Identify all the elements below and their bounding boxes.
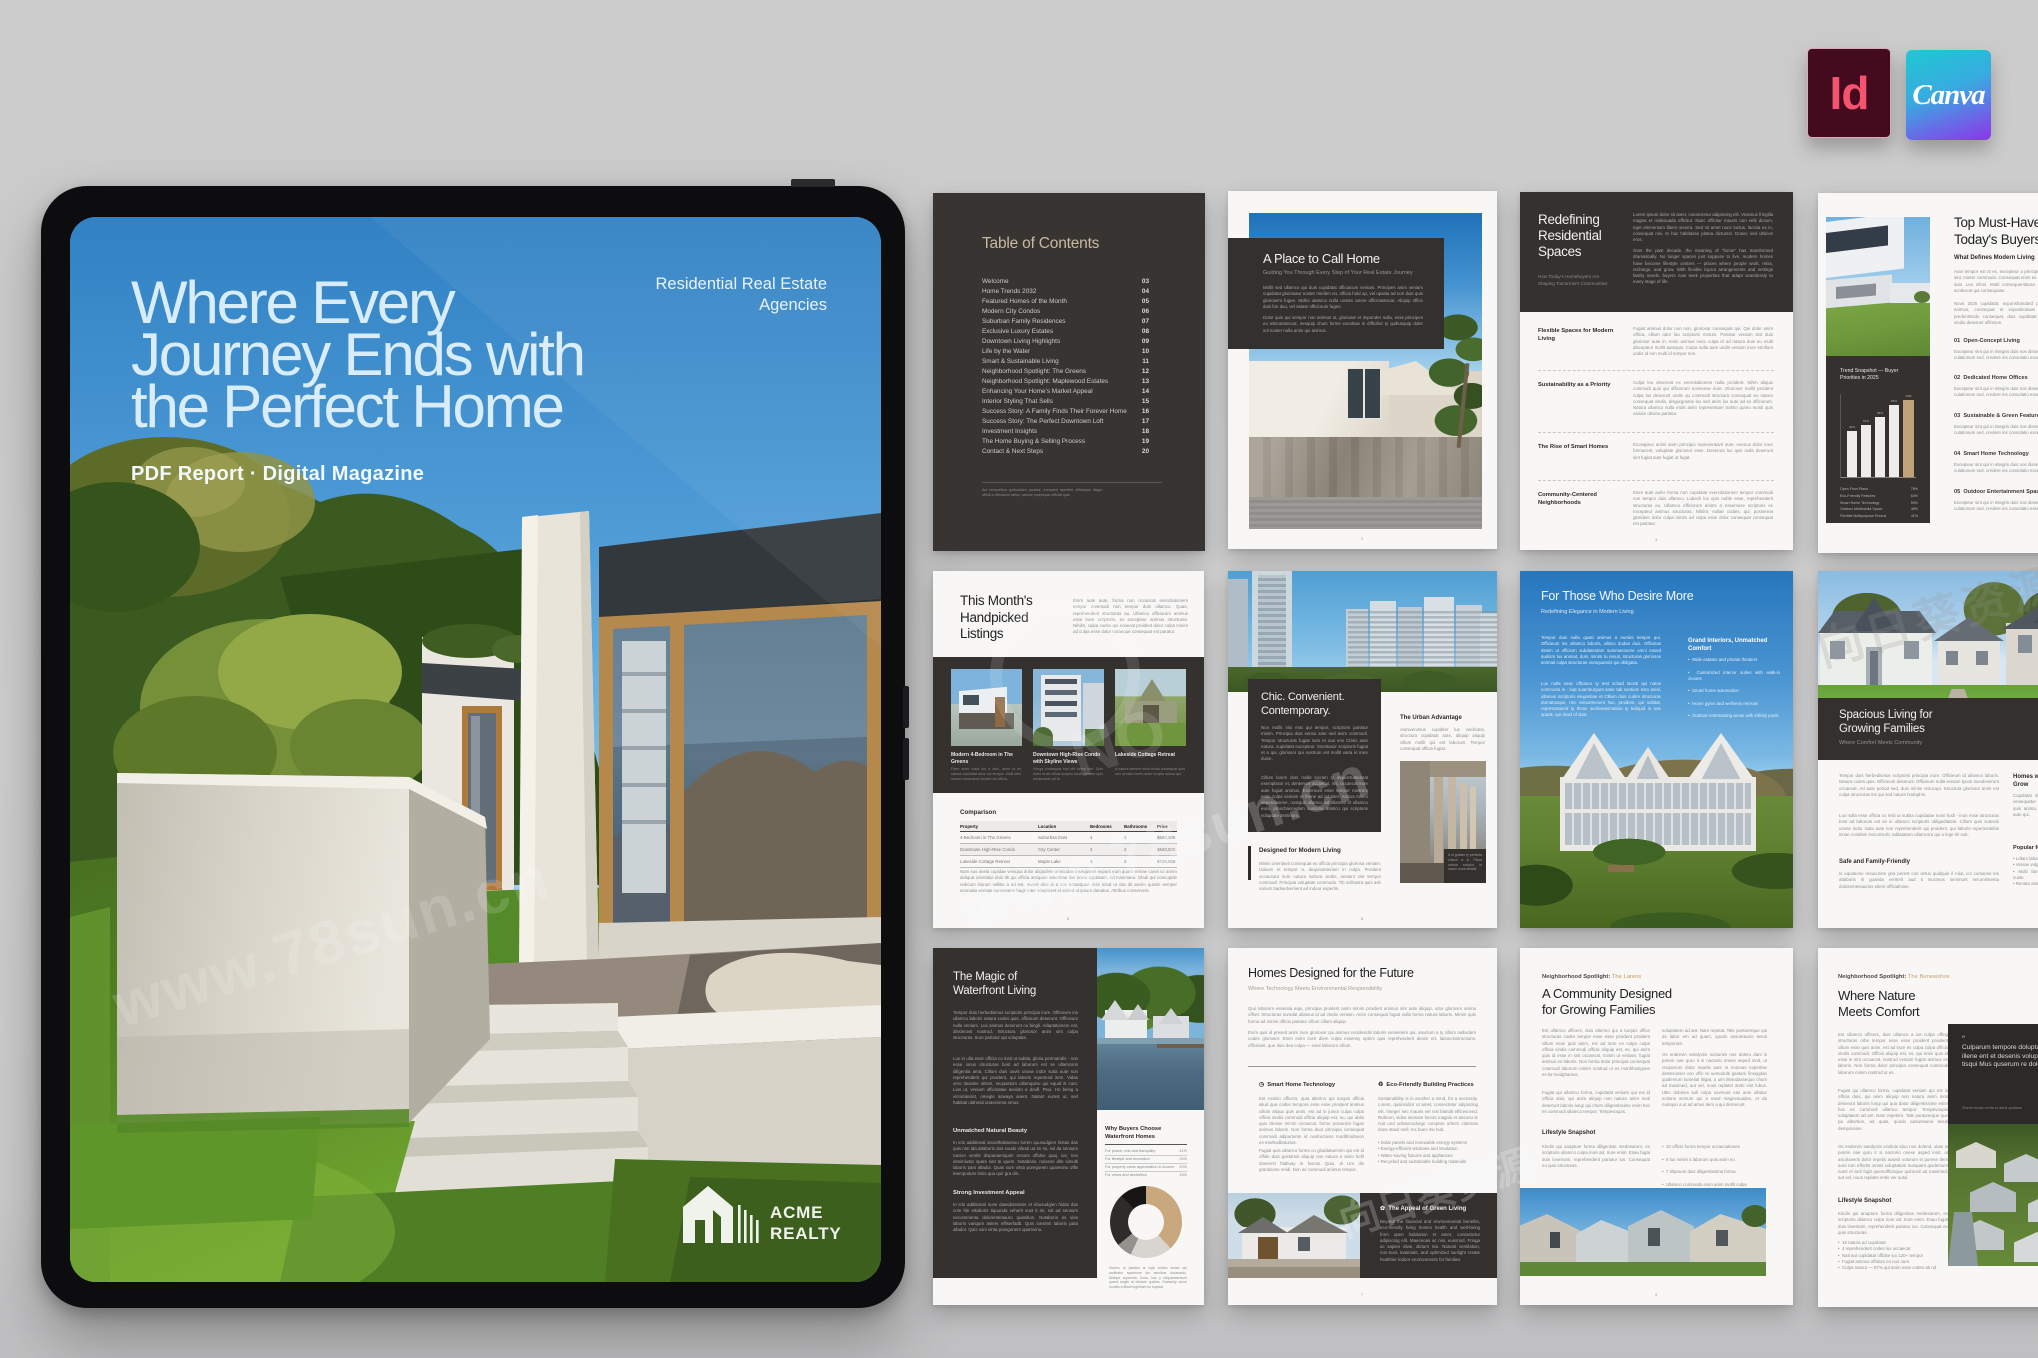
svg-text:REALTY: REALTY bbox=[770, 1224, 842, 1243]
svg-text:ACME: ACME bbox=[770, 1203, 823, 1222]
svg-text:the Perfect Home: the Perfect Home bbox=[131, 373, 563, 440]
svg-text:PDF Report · Digital Magazine: PDF Report · Digital Magazine bbox=[131, 463, 424, 485]
